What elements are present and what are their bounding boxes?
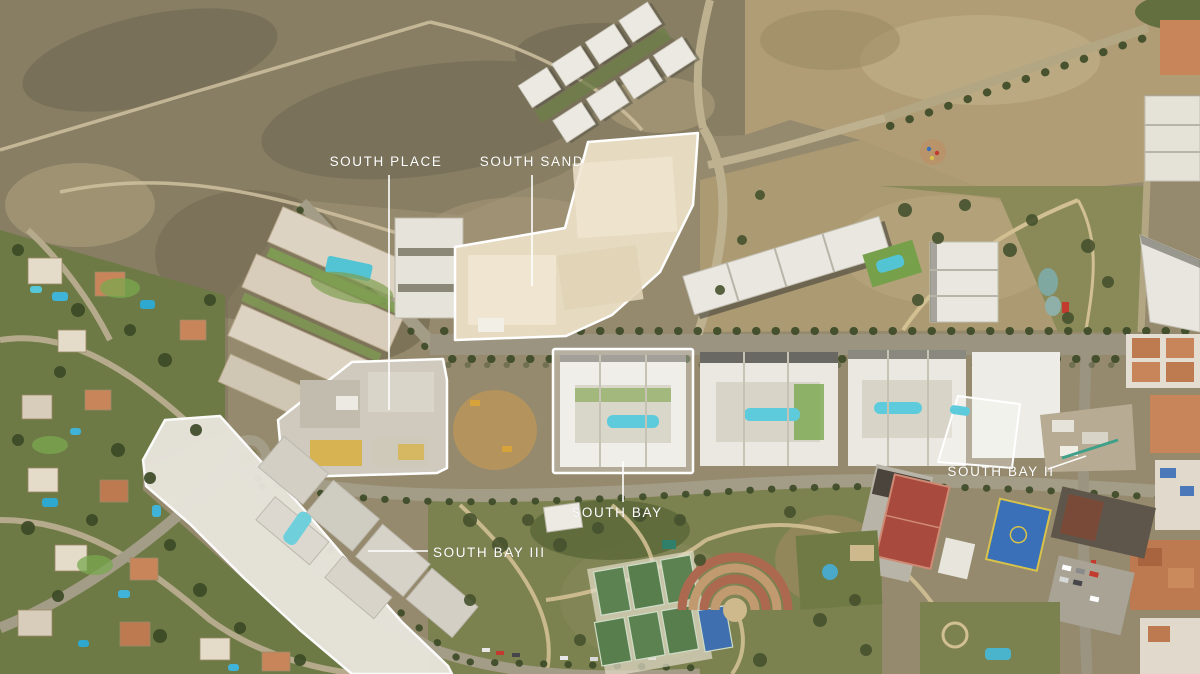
pool (874, 402, 922, 414)
formwork-yellow (310, 440, 362, 466)
label-text-south-sand: SOUTH SAND (480, 154, 585, 169)
pool-south-bay (607, 415, 659, 428)
aerial-map: SOUTH PLACE SOUTH SAND SOUTH BAY SOUTH B… (0, 0, 1200, 674)
roof-shadow (700, 352, 838, 363)
playground-sand (850, 545, 874, 561)
apartment-block-2 (700, 352, 838, 466)
school-garden (920, 602, 1060, 674)
courtyard-lawn (575, 388, 671, 402)
slab (368, 372, 434, 412)
label-text-south-bay-ii: SOUTH BAY II (947, 464, 1054, 479)
playground-circle-blue (822, 564, 838, 580)
zone-south-bay (553, 349, 693, 473)
sand-pad (557, 245, 644, 311)
site-hut (478, 318, 504, 332)
materials (1052, 420, 1074, 432)
roofs-top-right (1160, 20, 1200, 75)
construction-dirt (453, 390, 537, 470)
pool (744, 408, 800, 421)
dirt-patch (760, 10, 900, 70)
label-text-south-bay-iii: SOUTH BAY III (433, 545, 546, 560)
label-text-south-bay: SOUTH BAY (571, 505, 662, 520)
sand-pad (468, 255, 556, 325)
formwork-yellow (398, 444, 424, 460)
digger (502, 446, 512, 452)
roof-shadow (848, 350, 966, 359)
label-text-south-place: SOUTH PLACE (330, 154, 443, 169)
building-block-north-right (930, 242, 998, 322)
park-cabin (662, 540, 676, 549)
slab-bright (336, 396, 358, 410)
maintenance-vehicle-red (1062, 302, 1069, 313)
materials (1082, 432, 1108, 444)
sand-pad (573, 157, 678, 239)
playground-north-park (920, 139, 946, 165)
digger (470, 400, 480, 406)
roof-shadow (560, 355, 686, 362)
garden-pool (985, 648, 1011, 660)
complex-roof-line (398, 284, 460, 292)
complex-white-block (395, 218, 463, 318)
complex-roof-line (398, 248, 460, 256)
